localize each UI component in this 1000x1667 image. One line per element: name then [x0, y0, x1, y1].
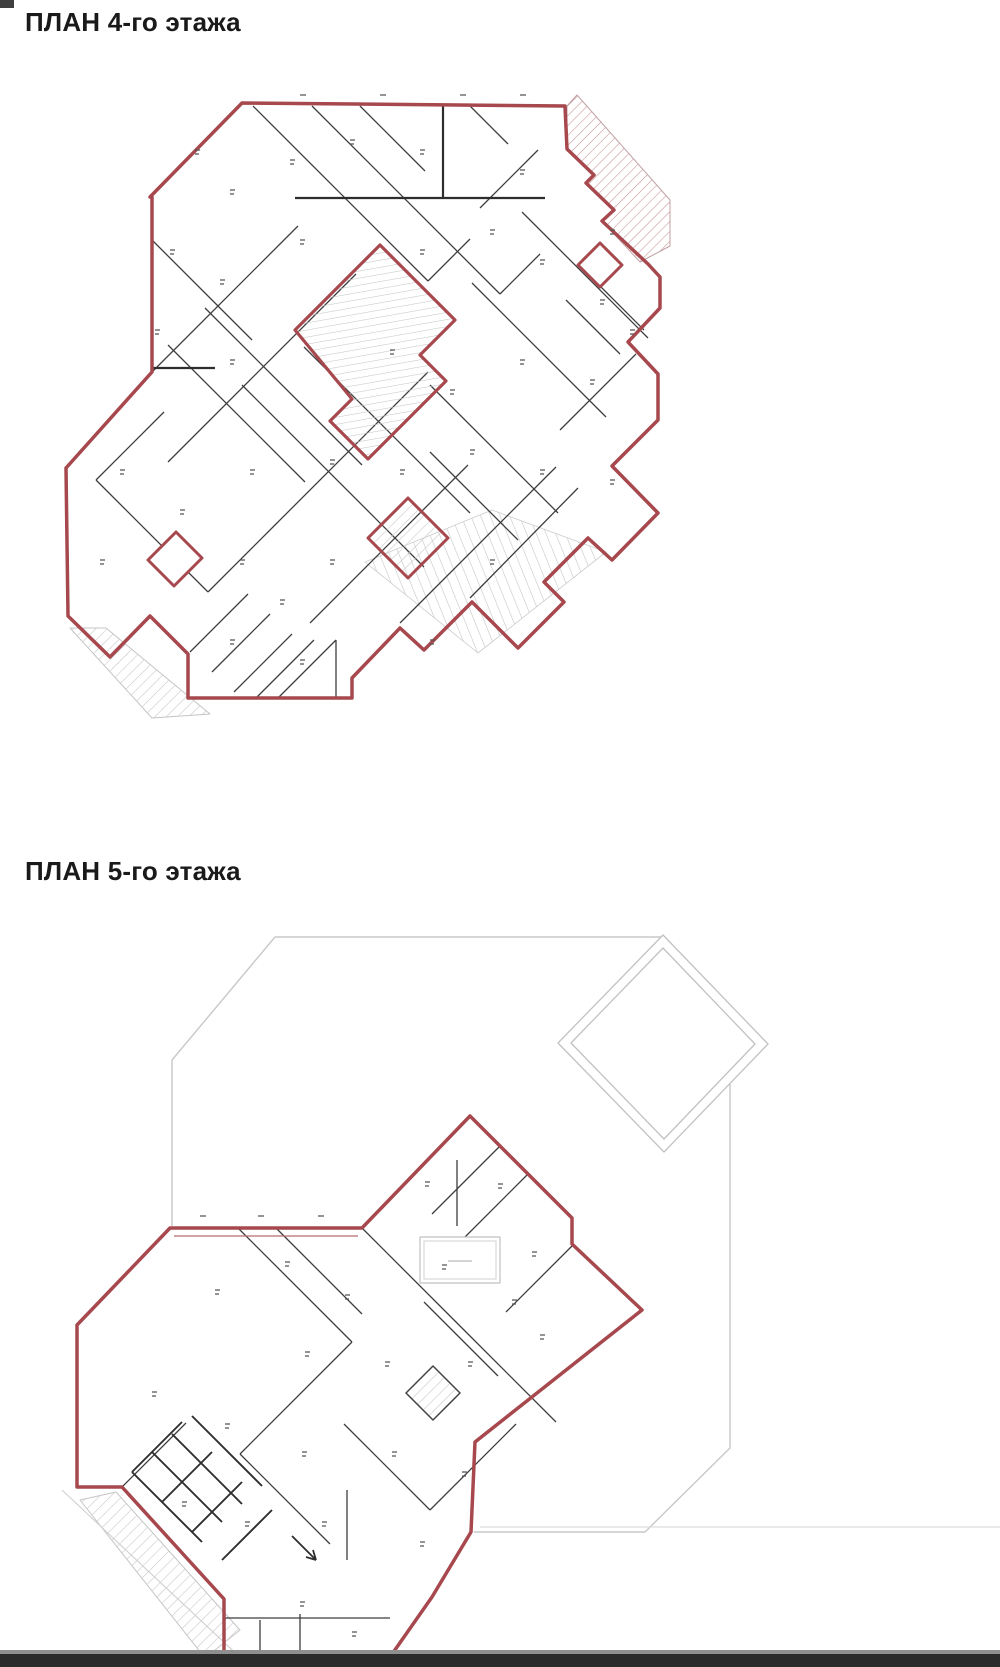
- floor-plan-5: [62, 935, 1000, 1662]
- plan4-red-square-right: [578, 243, 622, 287]
- plan5-shaft-diamond: [406, 1366, 460, 1420]
- plan5-stair-arrow: [292, 1536, 316, 1560]
- footer-bar: [0, 1654, 1000, 1667]
- plan5-terrace-rect: [420, 1237, 500, 1283]
- plan5-outer-gray-edge: [62, 1490, 245, 1662]
- floor-plans-drawing: [0, 0, 1000, 1667]
- plan5-skylight-diamond: [558, 935, 768, 1152]
- scan-corner-notch: [0, 0, 14, 8]
- floor-plan-4: [66, 95, 670, 718]
